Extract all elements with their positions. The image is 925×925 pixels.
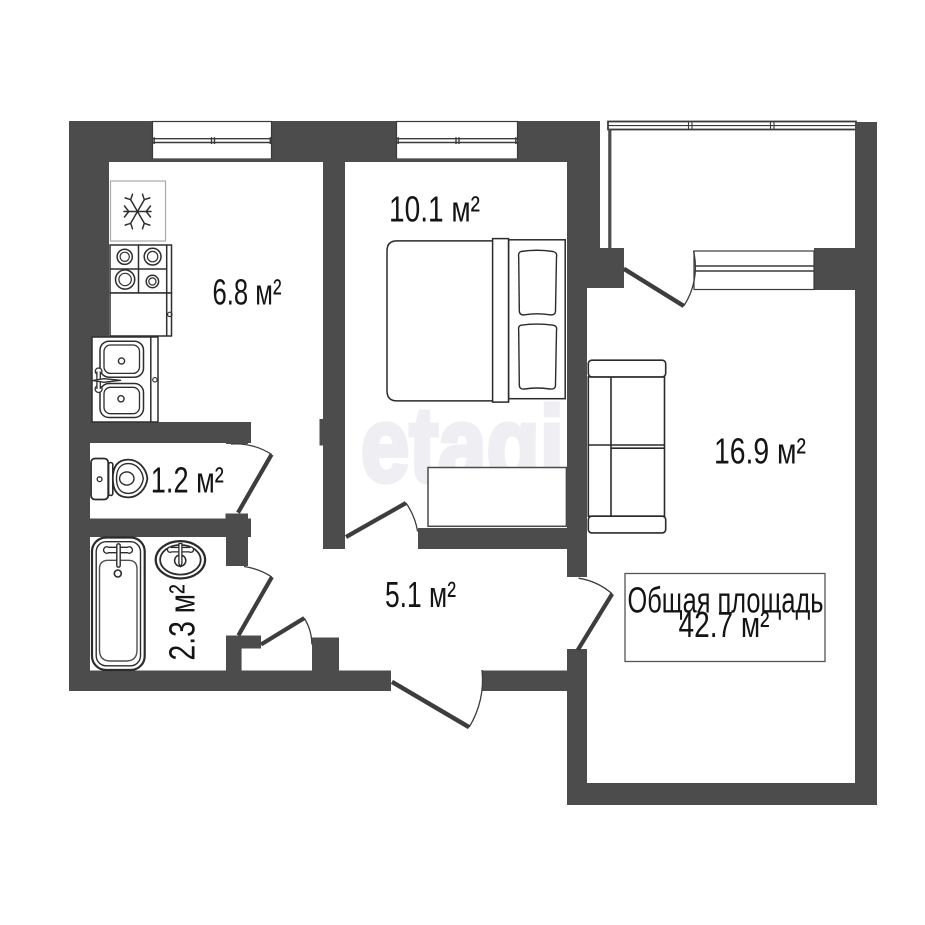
svg-text:10.1 м²: 10.1 м² — [389, 189, 480, 230]
svg-text:16.9 м²: 16.9 м² — [714, 431, 806, 472]
svg-text:1.2 м²: 1.2 м² — [151, 460, 224, 501]
svg-text:42.7 м²: 42.7 м² — [679, 604, 770, 645]
svg-text:6.8 м²: 6.8 м² — [213, 272, 282, 313]
svg-text:5.1 м²: 5.1 м² — [385, 574, 456, 615]
svg-text:2.3 м²: 2.3 м² — [162, 585, 203, 661]
